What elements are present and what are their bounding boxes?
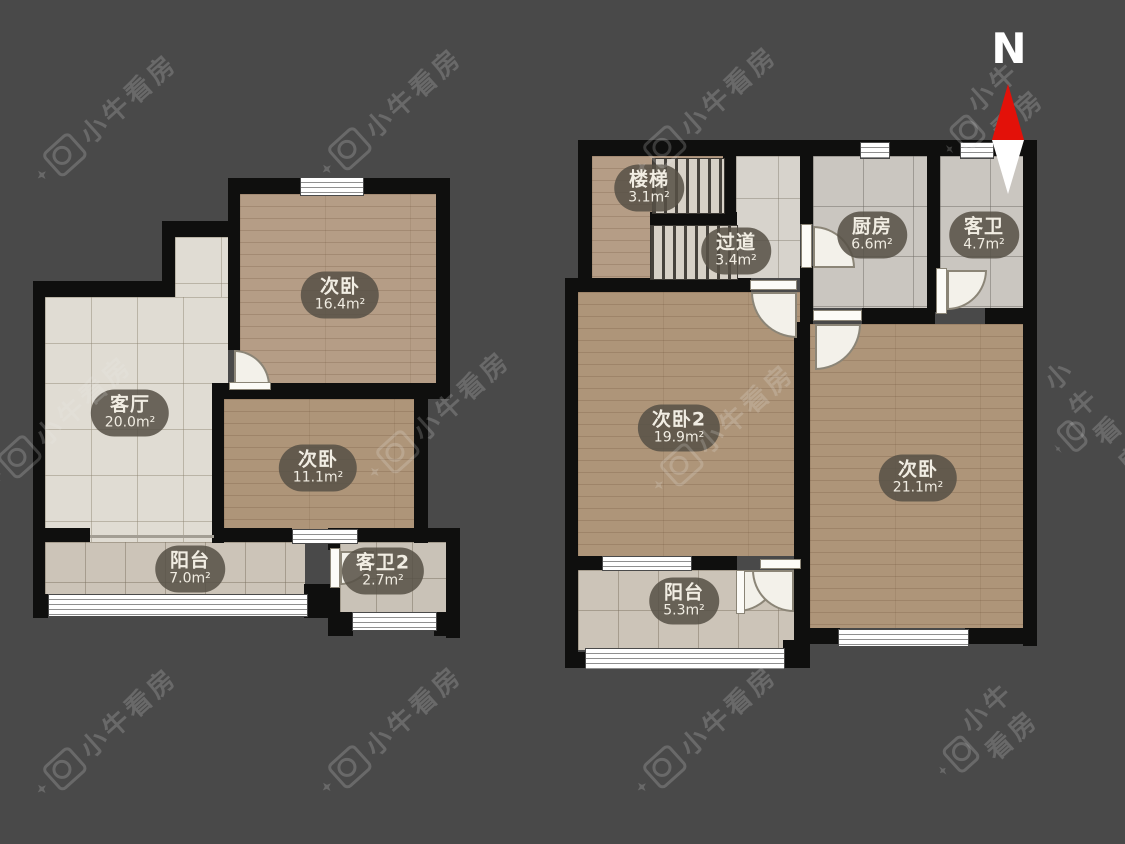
room-label-balcony: 阳台7.0m²: [155, 546, 225, 593]
room-label-bedroom2: 次卧219.9m²: [638, 405, 720, 452]
window: [300, 177, 364, 196]
wall: [794, 322, 810, 666]
sparkle-icon: [634, 779, 650, 795]
balcony2-door-leaf: [736, 570, 745, 614]
watermark: 小牛看房: [25, 44, 184, 193]
window: [960, 142, 994, 159]
camera-logo-icon: [325, 125, 373, 173]
sparkle-icon: [34, 167, 50, 183]
camera-logo-icon: [40, 131, 88, 179]
wall: [565, 278, 751, 292]
bath2-door-leaf: [330, 548, 340, 588]
bedroom-16-door-leaf: [229, 382, 271, 390]
sliding-opening: [602, 556, 692, 571]
camera-logo-icon: [940, 733, 982, 775]
watermark: 小牛看房: [310, 38, 469, 187]
camera-logo-icon: [40, 745, 88, 793]
room-label-kitchen: 厨房6.6m²: [837, 212, 907, 259]
watermark: 小牛看房: [625, 656, 784, 805]
watermark: 小牛看房: [25, 658, 184, 807]
north-arrow-icon: [992, 140, 1024, 194]
wall: [33, 594, 48, 618]
camera-logo-icon: [1054, 418, 1090, 455]
window: [48, 594, 308, 617]
wall: [800, 156, 813, 224]
sparkle-icon: [319, 779, 335, 795]
wall: [33, 281, 45, 617]
kitchen-door-leaf: [801, 224, 812, 268]
room-label-bath: 客卫4.7m²: [949, 212, 1019, 259]
wall: [783, 640, 810, 668]
room-label-balcony2: 阳台5.3m²: [649, 578, 719, 625]
wall: [578, 140, 592, 292]
room-label-living: 客厅20.0m²: [91, 390, 169, 437]
wall: [690, 556, 737, 570]
wall: [1023, 140, 1037, 646]
wall: [304, 584, 340, 618]
bath-door-leaf: [936, 268, 947, 314]
wall: [33, 281, 175, 297]
living-room-floor: [175, 237, 228, 299]
window: [585, 648, 785, 670]
watermark: 小牛看房: [310, 656, 469, 805]
room-label-hallway: 过道3.4m²: [701, 228, 771, 275]
wall: [212, 528, 292, 542]
window: [860, 142, 890, 159]
wall: [228, 194, 240, 350]
north-arrow-icon: [992, 84, 1024, 140]
wall: [436, 178, 450, 398]
threshold-line: [90, 535, 214, 538]
sparkle-icon: [936, 764, 949, 777]
wall: [965, 628, 1025, 644]
sparkle-icon: [34, 781, 50, 797]
wall: [862, 308, 935, 324]
camera-logo-icon: [325, 743, 373, 791]
watermark: 小牛看房: [915, 655, 1065, 800]
sparkle-icon: [319, 161, 335, 177]
wall: [578, 556, 604, 570]
wall: [212, 399, 224, 543]
hallway-door-leaf: [750, 280, 797, 290]
sliding-opening: [292, 529, 358, 544]
wall: [414, 399, 428, 543]
wall: [565, 652, 585, 668]
window: [352, 612, 437, 631]
north-label: N: [990, 24, 1028, 73]
wall: [434, 612, 460, 636]
wall: [808, 628, 840, 644]
living-room-floor: [45, 297, 228, 385]
wall: [985, 308, 1023, 324]
balcony2-door-leaf: [760, 559, 801, 569]
bedroom-21-door-leaf: [813, 310, 862, 321]
room-label-bedroom-16: 次卧16.4m²: [301, 272, 379, 319]
wall: [565, 278, 578, 668]
sparkle-icon: [1053, 443, 1064, 454]
room-label-bath2: 客卫22.7m²: [342, 548, 424, 595]
floorplan-canvas: 次卧16.4m² 客厅20.0m² 次卧11.1m² 阳台7.0m² 客卫22.…: [0, 0, 1125, 844]
room-label-bedroom-21: 次卧21.1m²: [879, 455, 957, 502]
room-label-bedroom-11: 次卧11.1m²: [279, 445, 357, 492]
camera-logo-icon: [640, 743, 688, 791]
sparkle-icon: [0, 469, 5, 485]
wall: [800, 266, 813, 324]
wall: [33, 528, 90, 542]
room-label-stairs: 楼梯3.1m²: [614, 165, 684, 212]
window: [838, 629, 969, 647]
